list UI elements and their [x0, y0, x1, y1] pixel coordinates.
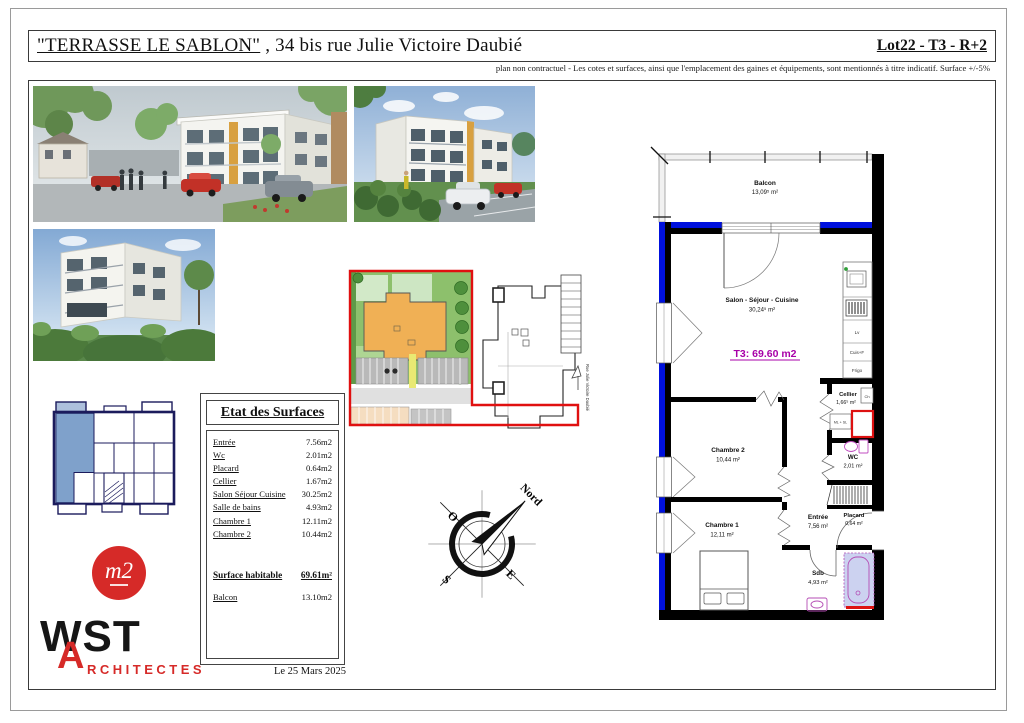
entree-area: 7,56 m²: [808, 524, 828, 530]
balcon-area: 13,09⁵ m²: [752, 189, 778, 196]
placard-hatch: [827, 485, 867, 505]
sink-sdb-icon: [807, 598, 827, 611]
kitchen-frigo-label: Frigo: [852, 368, 863, 373]
chambre1-window: [657, 513, 696, 553]
duct-shaft: [852, 411, 873, 437]
balcony-door-swing: [724, 233, 779, 288]
entree-label: Entrée: [808, 514, 829, 521]
wc-label: WC: [848, 454, 859, 461]
table-row: Cellier1.67m2: [213, 475, 332, 488]
architectes-text: RCHITECTES: [87, 662, 205, 677]
parking-row-right: [418, 358, 468, 384]
door-openings: [756, 391, 834, 545]
key-balcony-bottom-mid: [102, 504, 122, 512]
sdb-label: Sdb: [812, 570, 824, 577]
table-row: Entrée7.56m2: [213, 436, 332, 449]
render-street-view: [33, 86, 347, 222]
architectes-initial: A: [57, 635, 84, 678]
table-row: Chambre 210.44m2: [213, 528, 332, 541]
wst-architectes-logo: WST A RCHITECTES: [40, 612, 215, 690]
residence-name: "TERRASSE LE SABLON": [37, 35, 260, 56]
wst-letters: WST: [40, 612, 141, 662]
surface-table-title-box: Etat des Surfaces: [206, 400, 339, 425]
stair-strip: [561, 275, 581, 353]
page-title: "TERRASSE LE SABLON" , 34 bis rue Julie …: [37, 35, 522, 57]
parking-row-beige: [351, 407, 409, 424]
salon-window: [657, 303, 703, 363]
lot-label: Lot22 - T3 - R+2: [877, 37, 987, 55]
key-balcony-bottom-right: [140, 504, 168, 514]
cellier-label: Cellier: [839, 392, 857, 398]
table-row: Salon Séjour Cuisine30.25m2: [213, 488, 332, 501]
render-side-view: [354, 86, 535, 222]
building: [61, 243, 181, 327]
date-label: Le 25 Mars 2025: [250, 666, 370, 677]
compass-east-label: E: [503, 567, 519, 583]
salon-area: 30,24⁵ m²: [749, 307, 775, 314]
title-bar: "TERRASSE LE SABLON" , 34 bis rue Julie …: [28, 30, 996, 62]
salon-label: Salon - Séjour - Cuisine: [726, 297, 799, 304]
handicap-stall-icon: [384, 368, 389, 373]
yellow-path: [409, 354, 416, 388]
m2-logo-text: m2: [105, 561, 133, 581]
table-row-balcony: Balcon13.10m2: [213, 591, 332, 604]
bed-icon: [700, 551, 748, 610]
table-row: Salle de bains4.93m2: [213, 501, 332, 514]
table-row: Placard0.64m2: [213, 462, 332, 475]
wc-area: 2,01 m²: [844, 464, 863, 470]
kitchen-lv-label: Lv: [855, 330, 861, 335]
hedge: [351, 272, 356, 384]
bay-window: [722, 222, 820, 235]
surface-table: Etat des Surfaces Entrée7.56m2 Wc2.01m2 …: [200, 393, 345, 665]
surface-table-body: Entrée7.56m2 Wc2.01m2 Placard0.64m2 Cell…: [206, 430, 339, 659]
person-yellow: [404, 171, 409, 189]
bathtub-icon: [844, 553, 874, 609]
building-footprint: [364, 293, 446, 360]
sdb-area: 4,93 m²: [808, 580, 828, 586]
handicap-stall-icon: [392, 368, 397, 373]
table-row: Chambre 112.11m2: [213, 515, 332, 528]
surface-table-title: Etat des Surfaces: [221, 405, 324, 421]
parking-row-bottom: [411, 409, 451, 424]
cellier-area: 1,66⁵ m²: [836, 400, 856, 406]
radiator: [846, 606, 874, 609]
placard-label: Placard: [844, 513, 865, 519]
render-garden-view: [33, 229, 215, 361]
placard-area: 0,64 m²: [845, 521, 863, 527]
address-text: , 34 bis rue Julie Victoire Daubié: [265, 35, 522, 56]
disclaimer-text: plan non contractuel - Les cotes et surf…: [28, 63, 990, 73]
key-balcony-bottom-left: [58, 504, 86, 514]
street-label: Rue Julie Victoire Daubié: [585, 364, 590, 412]
mlsl-label: ML + SL: [834, 421, 847, 425]
access-road: [351, 388, 471, 404]
parking-row-left: [356, 358, 408, 384]
m2-logo-bar: [110, 584, 128, 586]
chambre1-label: Chambre 1: [705, 522, 739, 529]
chambre2-label: Chambre 2: [711, 447, 745, 454]
floor-plan: Lv Cuis+F Frigo Ch ML + SL: [640, 145, 900, 625]
unit-type-label: T3: 69.60 m2: [733, 348, 796, 360]
table-row: Wc2.01m2: [213, 449, 332, 462]
chambre2-window: [657, 457, 696, 497]
plan-sheet: "TERRASSE LE SABLON" , 34 bis rue Julie …: [0, 0, 1024, 723]
ground-floor-glazing: [67, 303, 107, 317]
table-row-total: Surface habitable69.61m²: [213, 569, 332, 582]
m2-logo: m2: [92, 546, 146, 600]
chambre2-area: 10,44 m²: [716, 458, 740, 464]
kitchen-cuisf-label: Cuis+F: [850, 350, 865, 355]
chambre1-area: 12,11 m²: [710, 533, 733, 539]
site-plan: Rue Julie Victoire Daubié: [348, 266, 593, 438]
unit-type-underline: [730, 360, 800, 361]
compass-rose: Nord O S E: [415, 477, 550, 612]
kitchen-counter: Lv Cuis+F Frigo: [843, 262, 872, 378]
stove-icon: [846, 300, 867, 316]
balcon-label: Balcon: [754, 180, 776, 187]
ch-label: Ch: [864, 394, 869, 399]
key-plan: [46, 398, 182, 520]
